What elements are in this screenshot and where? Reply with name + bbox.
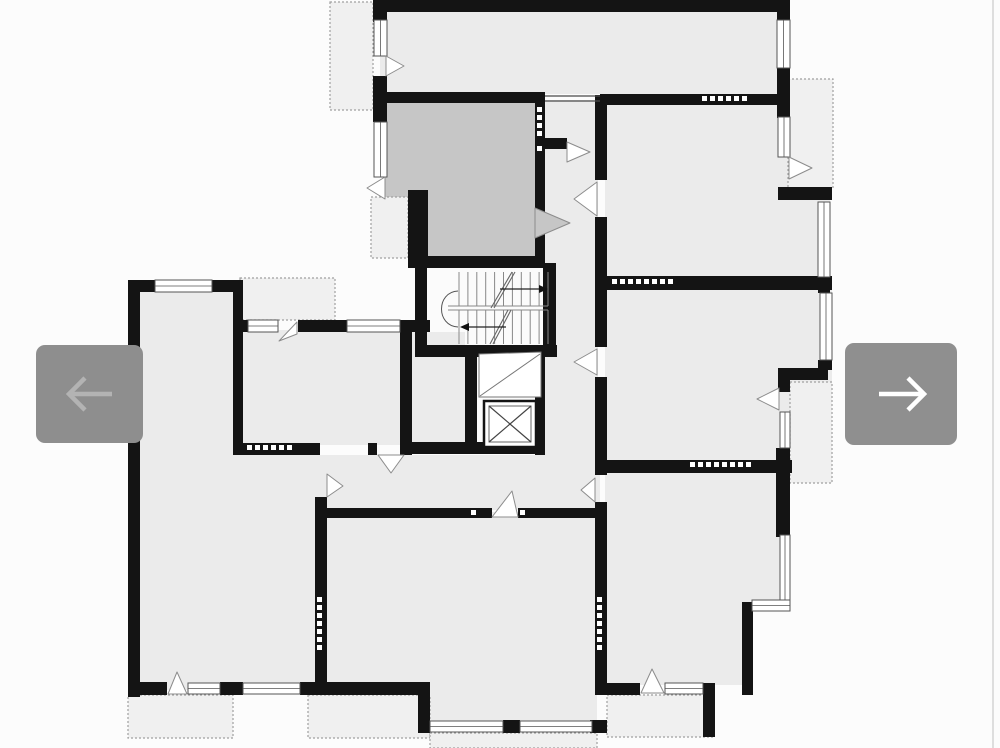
carousel-edge-divider: [992, 0, 994, 748]
arrow-left-icon: [36, 345, 143, 443]
image-carousel: [0, 0, 1000, 748]
next-image-button[interactable]: [845, 343, 957, 445]
previous-image-button[interactable]: [36, 345, 143, 443]
arrow-right-icon: [845, 343, 957, 445]
